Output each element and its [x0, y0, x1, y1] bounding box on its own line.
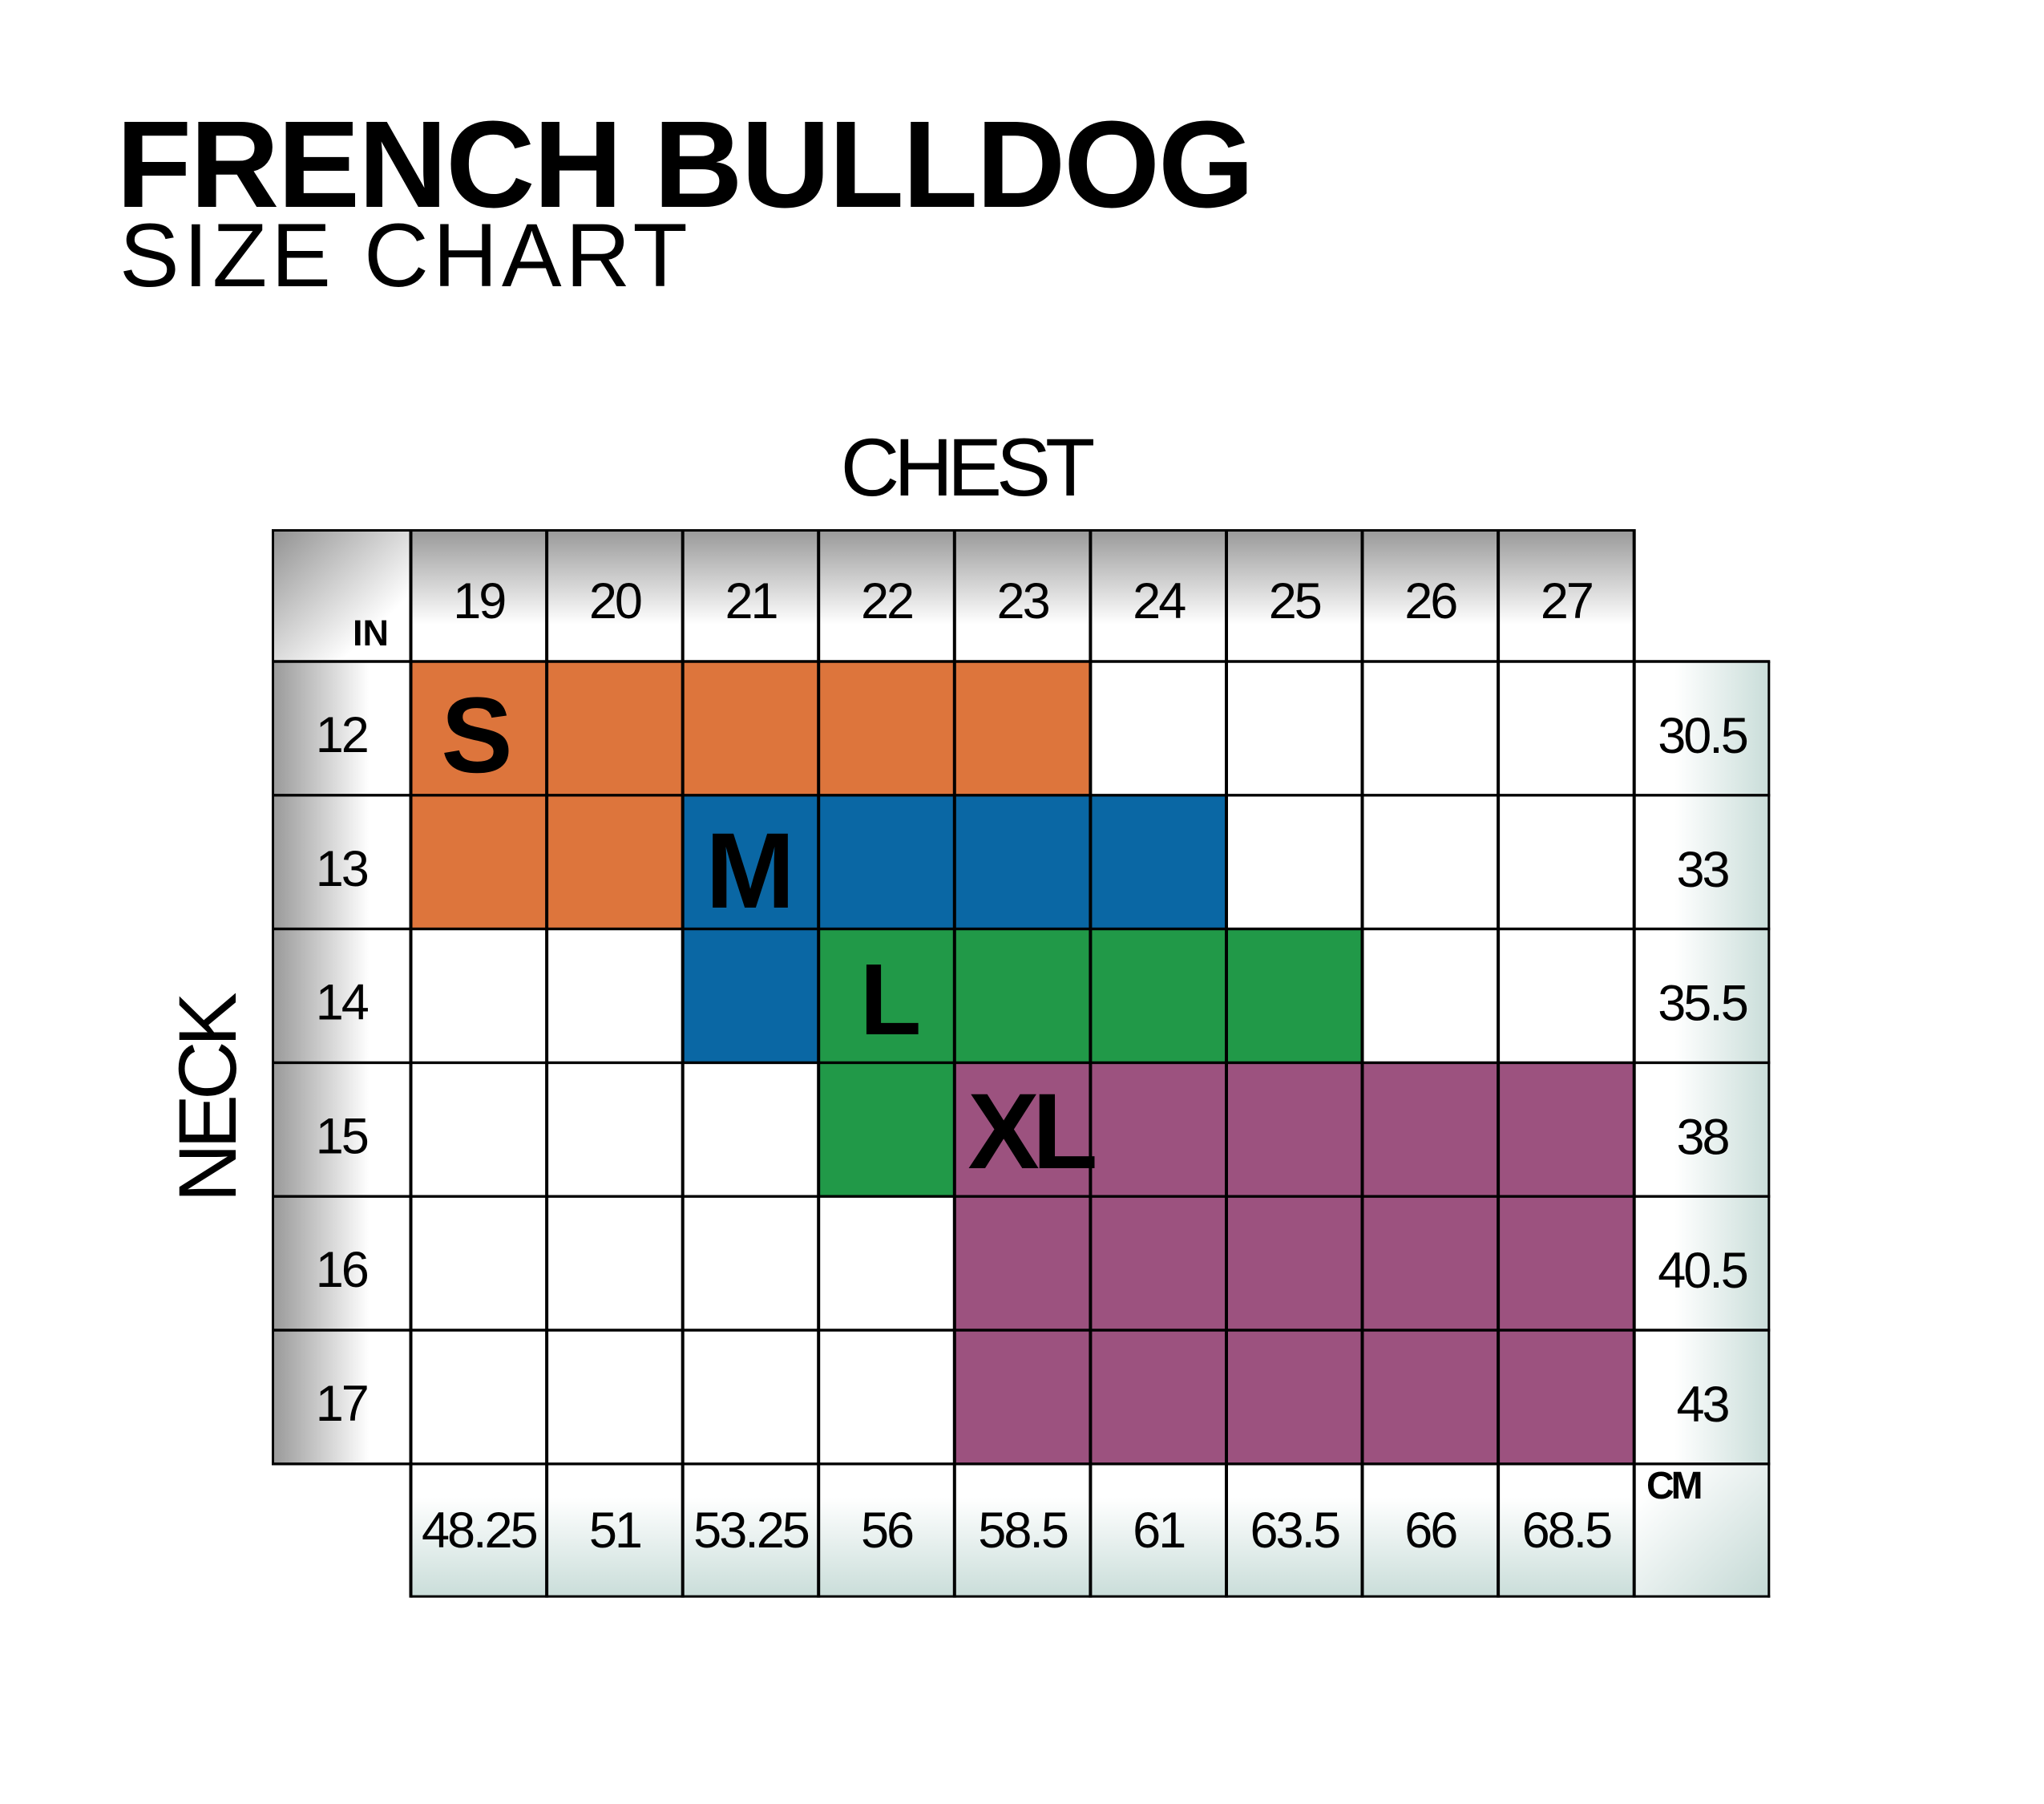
svg-text:21: 21 [725, 573, 776, 629]
svg-text:XL: XL [967, 1072, 1094, 1191]
svg-text:27: 27 [1541, 573, 1592, 629]
svg-text:56: 56 [861, 1503, 913, 1559]
svg-text:17: 17 [316, 1376, 367, 1432]
svg-text:22: 22 [861, 573, 912, 629]
svg-text:66: 66 [1404, 1503, 1456, 1559]
svg-text:43: 43 [1676, 1377, 1728, 1433]
svg-text:CHEST: CHEST [841, 422, 1093, 513]
svg-text:M: M [705, 811, 795, 931]
svg-text:26: 26 [1404, 573, 1456, 629]
svg-text:24: 24 [1133, 573, 1186, 629]
svg-text:20: 20 [589, 573, 641, 629]
svg-text:NECK: NECK [162, 993, 253, 1202]
svg-text:23: 23 [997, 573, 1049, 629]
svg-text:SIZE CHART: SIZE CHART [119, 205, 692, 305]
svg-text:30.5: 30.5 [1658, 708, 1747, 764]
svg-text:61: 61 [1133, 1503, 1184, 1559]
svg-text:38: 38 [1676, 1109, 1728, 1165]
svg-text:12: 12 [316, 707, 367, 763]
svg-text:40.5: 40.5 [1658, 1243, 1747, 1299]
svg-text:14: 14 [316, 975, 369, 1031]
svg-text:53.25: 53.25 [693, 1503, 809, 1559]
svg-text:13: 13 [316, 841, 368, 897]
svg-text:35.5: 35.5 [1658, 976, 1747, 1032]
svg-text:IN: IN [353, 613, 389, 653]
svg-text:33: 33 [1676, 842, 1728, 898]
svg-text:58.5: 58.5 [978, 1503, 1068, 1559]
svg-text:48.25: 48.25 [422, 1503, 537, 1559]
svg-text:68.5: 68.5 [1522, 1503, 1612, 1559]
svg-text:63.5: 63.5 [1250, 1503, 1339, 1559]
svg-text:CM: CM [1646, 1465, 1701, 1507]
svg-text:25: 25 [1269, 573, 1321, 629]
svg-text:51: 51 [589, 1503, 640, 1559]
svg-text:L: L [860, 943, 922, 1056]
svg-text:S: S [441, 676, 512, 795]
svg-text:16: 16 [316, 1242, 368, 1298]
svg-text:15: 15 [316, 1108, 368, 1164]
svg-text:19: 19 [453, 573, 505, 629]
